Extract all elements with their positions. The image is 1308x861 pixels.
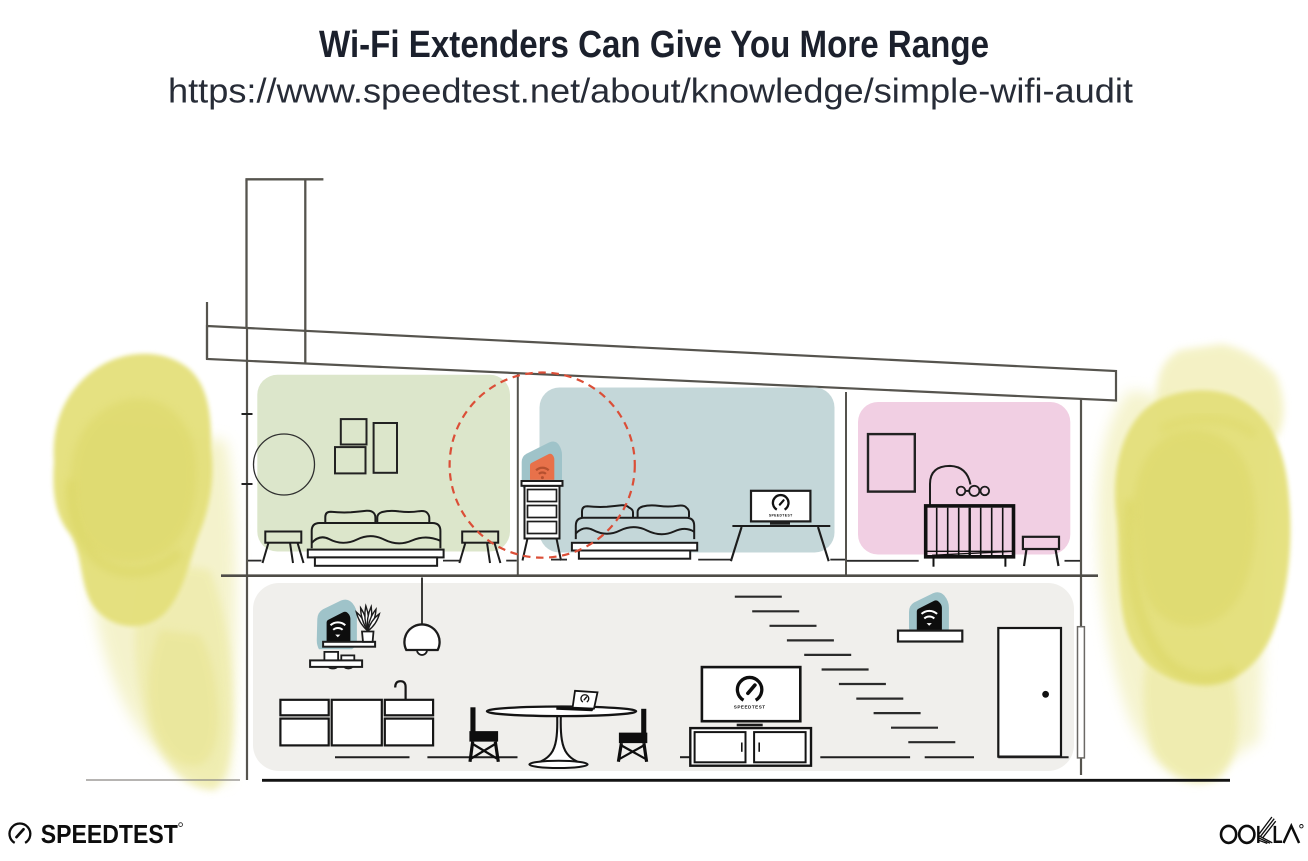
svg-text:SPEEDTEST: SPEEDTEST <box>41 821 178 849</box>
svg-text:https://www.speedtest.net/abou: https://www.speedtest.net/about/knowledg… <box>168 73 1134 111</box>
svg-text:SPEEDTEST: SPEEDTEST <box>769 514 793 518</box>
svg-text:Wi-Fi Extenders Can Give You M: Wi-Fi Extenders Can Give You More Range <box>319 24 989 66</box>
svg-text:SPEEDTEST: SPEEDTEST <box>734 705 766 710</box>
